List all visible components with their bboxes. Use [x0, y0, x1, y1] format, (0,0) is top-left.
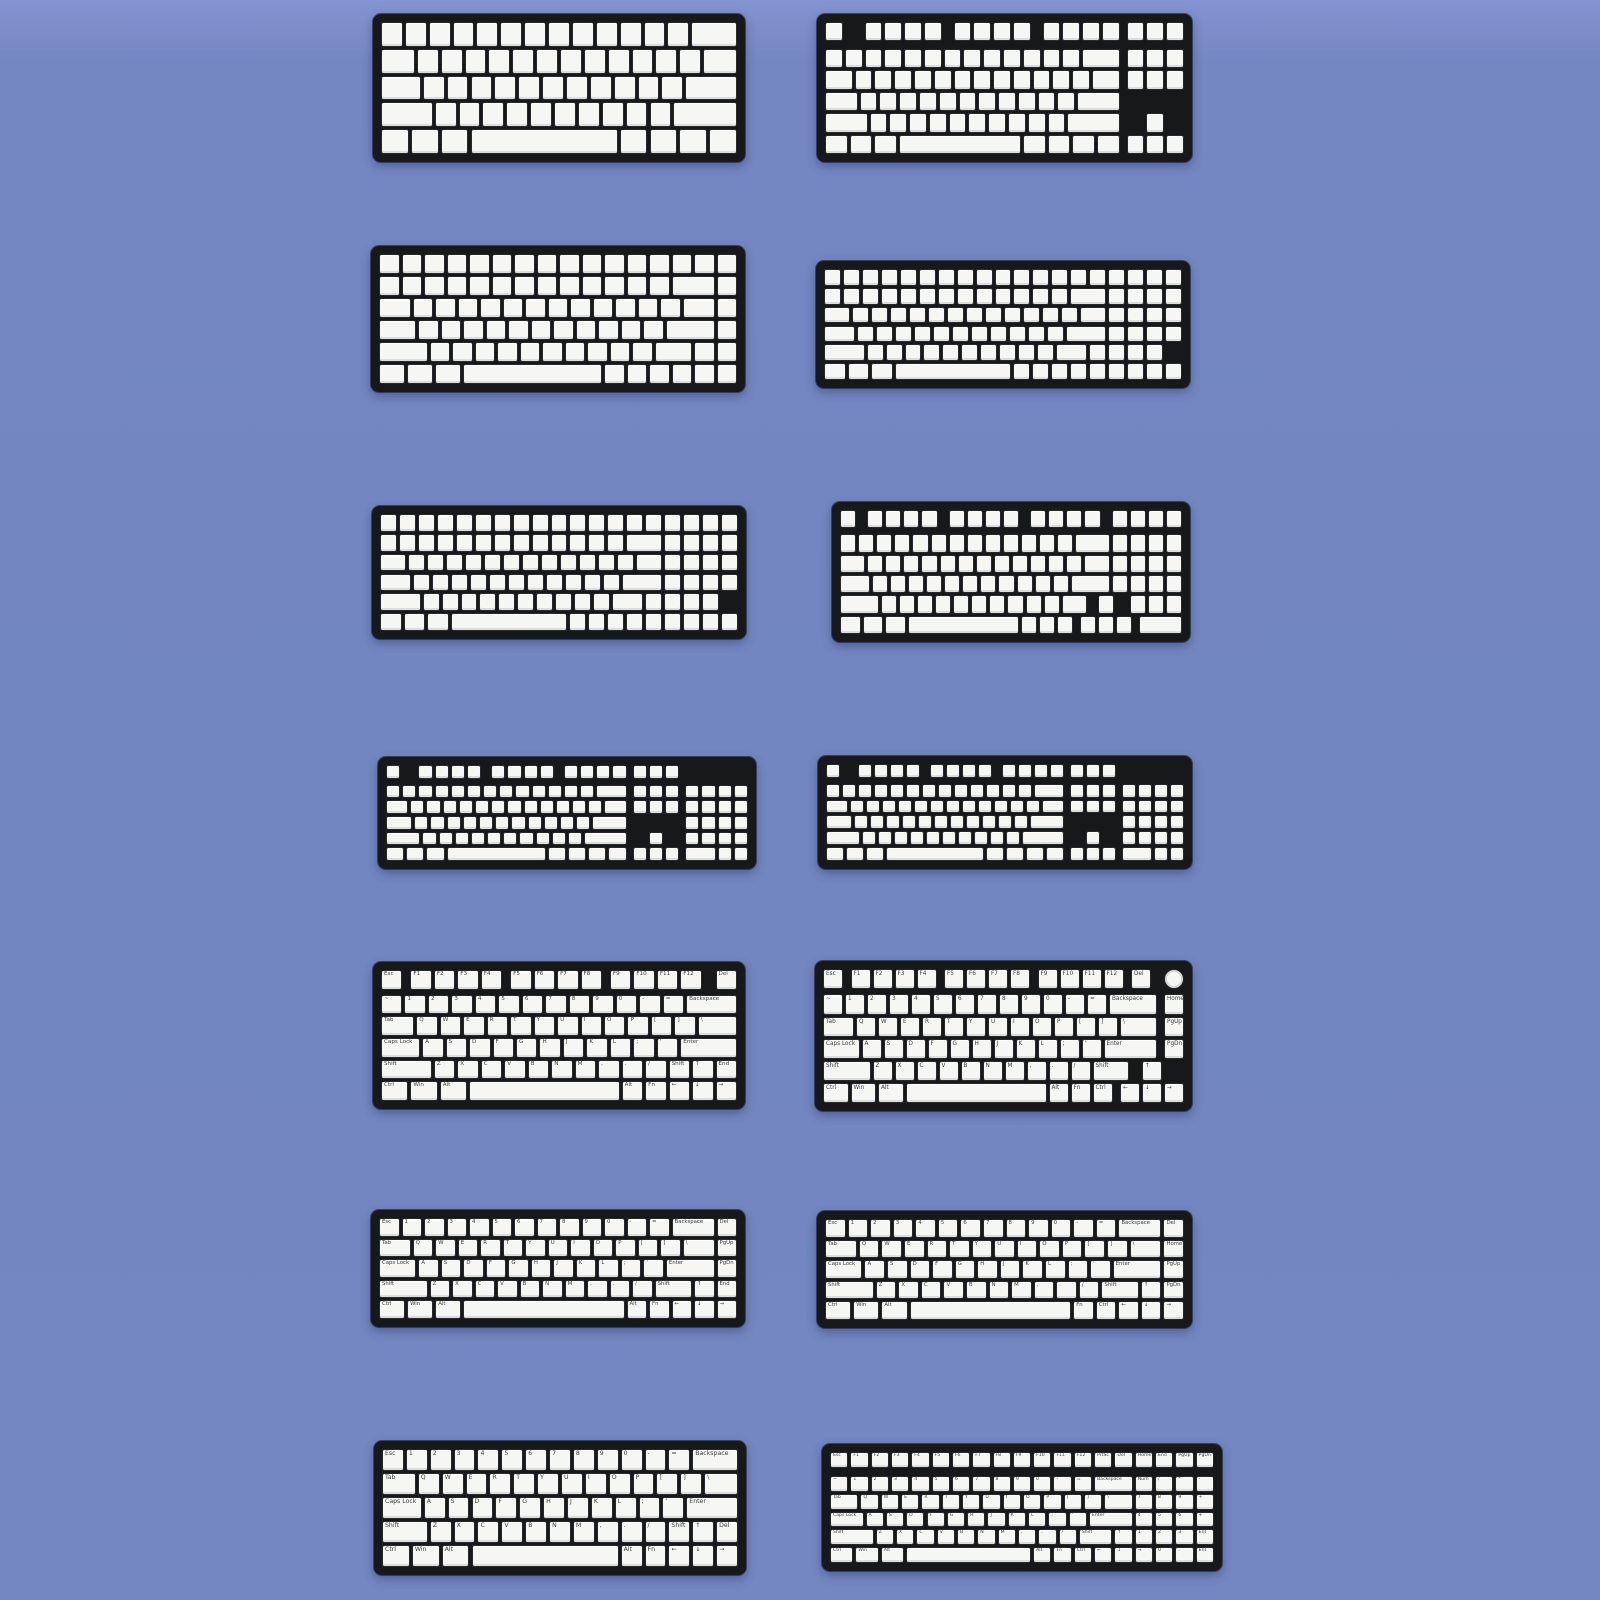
- keycap-k: K: [586, 1038, 607, 1058]
- keycap-f12: F12: [1074, 1452, 1092, 1468]
- keycap-win: Win: [410, 1081, 437, 1101]
- keycap: [483, 785, 497, 799]
- keycap: [638, 76, 660, 101]
- keycap: [487, 832, 501, 846]
- keycap: [633, 800, 647, 814]
- keycap: [944, 49, 962, 68]
- keycap: [1043, 22, 1061, 41]
- keycap: [928, 307, 945, 324]
- keycap-sym: ,: [1027, 1061, 1047, 1081]
- keycap: [962, 575, 978, 593]
- keycap-b: B: [520, 1280, 541, 1299]
- keycap: [508, 320, 529, 340]
- keycap: [532, 534, 549, 552]
- keycap: [889, 113, 907, 132]
- keycap: [524, 22, 546, 47]
- keycap: [1051, 288, 1068, 305]
- keycap-5: 5: [1155, 1512, 1173, 1528]
- keycap-sym: ;: [621, 1259, 642, 1278]
- keycap: [1070, 764, 1084, 778]
- keycap: [580, 765, 594, 779]
- keycap: [976, 288, 993, 305]
- keycap: [672, 254, 693, 274]
- keycap: [1127, 307, 1144, 324]
- keycap-f4: F4: [917, 969, 937, 989]
- keycap-2: 2: [867, 994, 887, 1014]
- keycap-p: P: [1043, 1494, 1061, 1510]
- keycap: [1038, 92, 1056, 111]
- keycap: [1130, 510, 1146, 528]
- keycap: [876, 534, 892, 552]
- keycap: [1146, 70, 1164, 89]
- keycap: [993, 70, 1011, 89]
- keycap: [1048, 113, 1066, 132]
- keycap: [1089, 363, 1106, 380]
- keycap: [524, 765, 538, 779]
- keycap: [914, 800, 928, 814]
- keycap-f10: F10: [633, 970, 654, 990]
- keycap: [380, 593, 421, 611]
- keycap-m: M: [565, 1280, 586, 1299]
- keycap-enter: Enter: [1089, 1512, 1133, 1528]
- keycap-1: 1: [406, 1449, 428, 1471]
- keycap-sym: [: [1076, 1017, 1096, 1037]
- keycap-alt: Alt: [881, 1301, 907, 1320]
- keycap: [604, 254, 625, 274]
- keycap: [498, 593, 515, 611]
- keycap: [881, 269, 898, 286]
- keycap: [957, 269, 974, 286]
- keycap-m: M: [1011, 1281, 1032, 1300]
- keycap: [584, 574, 601, 592]
- keycap-sym: -: [1065, 994, 1085, 1014]
- keycap: [702, 534, 719, 552]
- keycap: [386, 816, 412, 830]
- keycap-y: Y: [525, 1239, 546, 1258]
- keycap: [929, 113, 947, 132]
- keycap-m: M: [575, 1060, 596, 1080]
- keycap-sym: ': [1082, 1039, 1102, 1059]
- keycap: [568, 847, 586, 861]
- keycap: [1154, 831, 1168, 845]
- keycap-f11: F11: [657, 970, 678, 990]
- keycap: [1008, 113, 1026, 132]
- keycap: [399, 514, 416, 532]
- keycap: [475, 534, 492, 552]
- keycap: [569, 514, 586, 532]
- keycap-pgdn: PgDn: [1196, 1452, 1214, 1468]
- keyboard-65-percent-legends-left: Esc1234567890-=BackspaceDelTabQWERTYUIOP…: [371, 1210, 745, 1327]
- keycap: [1146, 113, 1164, 132]
- keycap-up-arrow: ↑: [694, 1280, 715, 1299]
- keyboard-65-percent-legends-right: Esc1234567890-=BackspaceDelTabQWERTYUIOP…: [817, 1211, 1192, 1328]
- keycap-u: U: [557, 1016, 578, 1036]
- keycap: [472, 1545, 619, 1567]
- keycap: [899, 135, 1021, 154]
- keycap: [994, 800, 1008, 814]
- keycap: [610, 342, 631, 362]
- keycap-ctrl: Ctrl: [381, 1081, 408, 1101]
- keycap: [546, 574, 563, 592]
- keycap: [548, 785, 562, 799]
- keycap-v: V: [937, 1529, 955, 1545]
- keycap-v: V: [939, 1061, 959, 1081]
- keycap: [410, 800, 424, 814]
- keycap: [386, 785, 400, 799]
- keycap: [1084, 510, 1100, 528]
- keycap-down-arrow: ↓: [1142, 1083, 1162, 1103]
- keycap: [429, 22, 451, 47]
- keycap: [1006, 831, 1020, 845]
- keycap: [379, 364, 405, 384]
- keycap: [471, 76, 493, 101]
- keycap: [994, 555, 1010, 573]
- keycap: [1009, 326, 1026, 343]
- keycap: [717, 364, 738, 384]
- keycap: [608, 847, 626, 861]
- keycap: [906, 1083, 1047, 1103]
- keycap-d: D: [472, 1497, 494, 1519]
- keycap-7: 7: [537, 1218, 558, 1237]
- keycap: [574, 593, 591, 611]
- keycap-sym: .: [1049, 1061, 1069, 1081]
- keycap: [381, 49, 415, 74]
- keycap: [938, 784, 952, 798]
- keycap-i: I: [1010, 1017, 1030, 1037]
- keycap: [734, 832, 748, 846]
- keycap-u: U: [561, 1473, 583, 1495]
- keycap: [1039, 616, 1055, 634]
- keycap-sym: /: [1071, 1061, 1091, 1081]
- keycap: [665, 785, 679, 799]
- keycap-j: J: [994, 1039, 1014, 1059]
- keycap: [430, 342, 451, 362]
- keycap: [900, 288, 917, 305]
- keycap: [441, 129, 469, 154]
- keycap: [447, 276, 468, 296]
- keycap: [531, 320, 552, 340]
- keycap: [528, 816, 542, 830]
- keycap-m: M: [998, 1529, 1016, 1545]
- keycap-v: V: [943, 1281, 964, 1300]
- keycap-sym: \: [704, 1473, 738, 1495]
- keycap-caps-lock: Caps Lock: [825, 1260, 862, 1279]
- keycap-g: G: [508, 1259, 529, 1278]
- keycap-s: S: [887, 1260, 908, 1279]
- keycap: [1102, 784, 1116, 798]
- keycap: [902, 815, 916, 829]
- keycap: [840, 534, 856, 552]
- keycap: [1043, 49, 1061, 68]
- keycap: [488, 49, 510, 74]
- keycap: [909, 113, 927, 132]
- keycap-i: I: [570, 1239, 591, 1258]
- keycap-t: T: [944, 1017, 964, 1037]
- keycap: [402, 276, 423, 296]
- keycap-6: 6: [514, 1218, 535, 1237]
- keycap-7: 7: [972, 1476, 990, 1492]
- keycap: [988, 113, 1006, 132]
- keycap: [825, 113, 868, 132]
- keycap: [402, 785, 416, 799]
- keycap: [1166, 555, 1182, 573]
- keycap: [446, 554, 463, 572]
- keycap-right-arrow: →: [716, 1545, 738, 1567]
- keycap: [1138, 800, 1152, 814]
- keycap: [1080, 616, 1096, 634]
- keycap: [1122, 784, 1136, 798]
- keycap: [649, 800, 663, 814]
- keycap: [632, 49, 654, 74]
- keycap: [922, 784, 936, 798]
- keycap: [1070, 269, 1087, 286]
- keycap: [694, 342, 715, 362]
- keycap: [603, 574, 620, 592]
- keycap-5: 5: [492, 1218, 513, 1237]
- keycap: [694, 364, 715, 384]
- keycap: [576, 320, 597, 340]
- keycap: [612, 593, 643, 611]
- keycap: [1070, 363, 1087, 380]
- keycap: [1127, 49, 1145, 68]
- keycap: [414, 816, 428, 830]
- keycap: [995, 269, 1012, 286]
- keycap-i: I: [581, 1016, 602, 1036]
- keycap: [626, 613, 643, 631]
- keycap-sym: ,: [1034, 1281, 1055, 1300]
- keycap: [582, 254, 603, 274]
- keycap: [976, 555, 992, 573]
- keycap: [954, 70, 972, 89]
- keycap: [569, 613, 586, 631]
- keycap-sym: \: [1130, 1240, 1162, 1259]
- keycap-alt: Alt: [622, 1081, 643, 1101]
- keycap-n: N: [977, 1529, 995, 1545]
- keycap-t: T: [513, 1473, 535, 1495]
- keycap: [475, 342, 496, 362]
- keycap: [874, 135, 897, 154]
- keycap: [627, 254, 648, 274]
- keycap: [825, 135, 848, 154]
- keycap: [721, 534, 738, 552]
- keycap-k: K: [1016, 1039, 1036, 1059]
- keycap: [885, 555, 901, 573]
- keycap: [518, 76, 540, 101]
- keycap-alt: Alt: [440, 1081, 467, 1101]
- keycap: [1014, 815, 1028, 829]
- keycap: [447, 847, 546, 861]
- keycap-o: O: [604, 1016, 625, 1036]
- keycap: [717, 298, 738, 318]
- keycap: [1032, 288, 1049, 305]
- keycap: [532, 785, 546, 799]
- keycap-backspace: Backspace: [1118, 1219, 1161, 1238]
- keycap-z: Z: [434, 1060, 455, 1080]
- keycap: [1166, 135, 1184, 154]
- keycap-del: Del: [716, 970, 737, 990]
- keycap: [1130, 595, 1146, 613]
- keycap-h: H: [972, 1039, 992, 1059]
- keycap-x: X: [452, 1280, 473, 1299]
- keycap: [717, 320, 738, 340]
- keycap: [584, 49, 606, 74]
- keycap: [910, 831, 924, 845]
- keycap: [453, 22, 475, 47]
- keycap-9: 9: [582, 1218, 603, 1237]
- keycap: [967, 534, 983, 552]
- keycap: [949, 113, 967, 132]
- keycap: [380, 554, 406, 572]
- keycap-l: L: [1038, 1039, 1058, 1059]
- keycap: [649, 276, 670, 296]
- keycap: [572, 22, 594, 47]
- keycap: [1066, 326, 1107, 343]
- keycap-n: N: [549, 1521, 571, 1543]
- keycap-alt: Alt: [442, 1545, 470, 1567]
- keyboard-fullsize-blank-right: [818, 756, 1192, 869]
- keycap: [881, 595, 897, 613]
- keycap-right-arrow: →: [716, 1081, 737, 1101]
- keycap: [1127, 135, 1145, 154]
- keycap-sym: \: [698, 1016, 737, 1036]
- keycap-w: W: [442, 1473, 464, 1495]
- keycap: [826, 800, 848, 814]
- keycap: [862, 288, 879, 305]
- rotary-knob: [1164, 969, 1184, 989]
- keycap-j: J: [1000, 1260, 1021, 1279]
- keycap: [1086, 800, 1100, 814]
- keycap: [1021, 534, 1037, 552]
- keycap: [885, 616, 906, 634]
- keycap: [503, 298, 524, 318]
- keycap-sym: ': [1069, 1512, 1087, 1528]
- keycap: [667, 22, 689, 47]
- keycap: [947, 307, 964, 324]
- keycap: [980, 575, 996, 593]
- keycap: [953, 595, 969, 613]
- keycap-sym: =: [1096, 1219, 1117, 1238]
- keycap-win: Win: [853, 1301, 879, 1320]
- keycap-3: 3: [451, 995, 472, 1015]
- keycap: [863, 616, 884, 634]
- keycap: [890, 784, 904, 798]
- keycap-ctrl: Ctrl: [1096, 1301, 1117, 1320]
- keycap: [1057, 534, 1073, 552]
- keycap-l: L: [1045, 1260, 1066, 1279]
- keycap: [966, 307, 983, 324]
- keycap: [565, 342, 586, 362]
- keycap: [548, 847, 566, 861]
- keycap: [968, 113, 986, 132]
- keycap-k: K: [591, 1497, 613, 1519]
- keycap: [850, 800, 864, 814]
- keycap: [489, 574, 506, 592]
- keycap: [1010, 800, 1024, 814]
- keycap: [1148, 575, 1164, 593]
- keycap: [886, 815, 900, 829]
- keycap: [1033, 70, 1051, 89]
- keycap: [443, 800, 457, 814]
- keycap-f2: F2: [873, 969, 893, 989]
- keycap: [1021, 616, 1037, 634]
- keycap: [962, 764, 976, 778]
- keycap-caps-lock: Caps Lock: [379, 1259, 416, 1278]
- keycap: [874, 784, 888, 798]
- keycap: [559, 276, 580, 296]
- keycap-m: M: [573, 1521, 595, 1543]
- keycap-shift: Shift: [382, 1521, 428, 1543]
- keycap: [862, 831, 876, 845]
- keycap: [644, 22, 666, 47]
- keycap: [379, 342, 428, 362]
- keycap: [986, 847, 1004, 861]
- keycap: [904, 22, 922, 41]
- keycap: [604, 364, 625, 384]
- keycap-8: 8: [569, 995, 590, 1015]
- keycap: [607, 534, 624, 552]
- keycap-pgdn: PgDn: [1163, 1281, 1184, 1300]
- keycap: [1026, 800, 1040, 814]
- keycap-d: D: [910, 1260, 931, 1279]
- keycap-k: K: [1008, 1512, 1026, 1528]
- keycap: [614, 76, 636, 101]
- keycap: [1097, 135, 1120, 154]
- keycap: [551, 534, 568, 552]
- keycap: [691, 22, 737, 47]
- keycap: [459, 102, 481, 127]
- keycap: [1035, 575, 1051, 593]
- keycap: [467, 765, 481, 779]
- keycap: [914, 326, 931, 343]
- keycap: [683, 534, 700, 552]
- keycap-g: G: [516, 1038, 537, 1058]
- keycap-p: P: [615, 1239, 636, 1258]
- keycap: [500, 22, 522, 47]
- keycap: [588, 613, 605, 631]
- keycap-l: L: [610, 1038, 631, 1058]
- keycap: [995, 288, 1012, 305]
- keycap: [1051, 363, 1068, 380]
- keycap-sym: /: [1079, 1281, 1100, 1300]
- keycap: [665, 800, 679, 814]
- keycap-sym: ;: [633, 1038, 654, 1058]
- keycap: [826, 815, 852, 829]
- keycap: [871, 307, 888, 324]
- keycap: [514, 254, 535, 274]
- keycap: [565, 574, 582, 592]
- keycap-win: Win: [851, 1083, 877, 1103]
- keycap-g: G: [519, 1497, 541, 1519]
- keycap-down-arrow: ↓: [1141, 1301, 1162, 1320]
- keycap-1: 1: [848, 1219, 869, 1238]
- keycap: [666, 320, 715, 340]
- keycap-sym: [: [1084, 1240, 1105, 1259]
- keycap: [1098, 595, 1114, 613]
- keycap-esc: Esc: [823, 969, 843, 989]
- keycap: [1003, 49, 1021, 68]
- keycap: [598, 320, 619, 340]
- keycap-pgup: PgUp: [1175, 1452, 1193, 1468]
- keycap: [858, 784, 872, 798]
- keycap: [906, 784, 920, 798]
- keycap: [379, 320, 416, 340]
- keycap: [1127, 22, 1145, 41]
- keycap: [967, 510, 983, 528]
- keycap: [990, 831, 1004, 845]
- keycap-6: 6: [960, 1219, 981, 1238]
- keycap: [582, 276, 603, 296]
- keycap: [1146, 22, 1164, 41]
